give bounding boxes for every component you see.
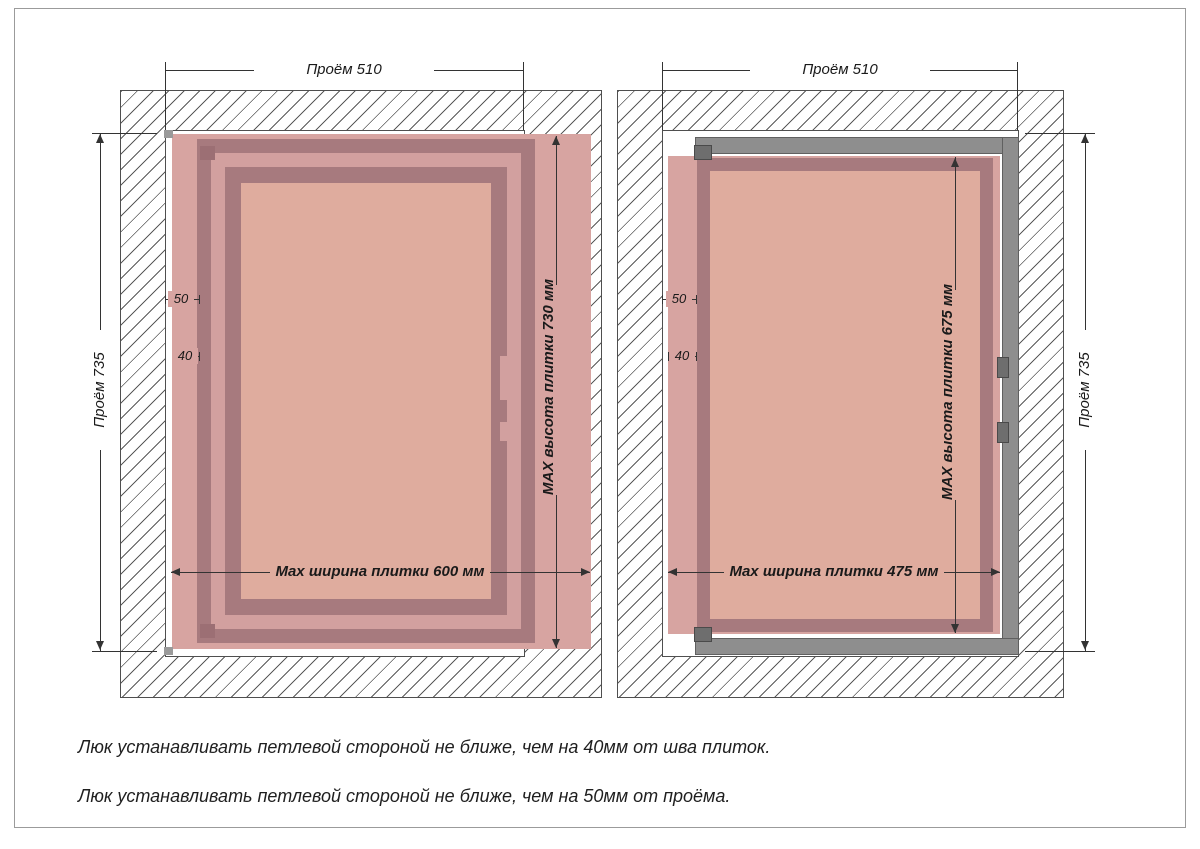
right-dim-40-label: 40 bbox=[669, 348, 695, 364]
left-door-panel bbox=[241, 183, 491, 599]
right-dim-50-tick-right bbox=[696, 295, 697, 304]
right-dim-50-label: 50 bbox=[666, 291, 692, 307]
left-dim-50-tick-left bbox=[165, 295, 166, 304]
left-hinge-top bbox=[200, 146, 215, 160]
right-dim-tile-height-arrow-down bbox=[951, 624, 959, 633]
left-dim-40-label: 40 bbox=[172, 348, 198, 364]
note-hinge-offset-seam: Люк устанавливать петлевой стороной не б… bbox=[78, 737, 770, 758]
right-dim-tile-height-arrow-up bbox=[951, 158, 959, 167]
left-ext-line-opening-right bbox=[523, 62, 524, 130]
right-metal-frame-bottom bbox=[695, 638, 1019, 655]
note-hinge-offset-opening: Люк устанавливать петлевой стороной не б… bbox=[78, 786, 730, 807]
left-dim-50-label: 50 bbox=[168, 291, 194, 307]
right-hinge-top bbox=[694, 145, 712, 160]
right-metal-frame-top bbox=[695, 137, 1019, 154]
right-dim-opening-height-arrow-down bbox=[1081, 641, 1089, 650]
left-ext-line-opening-bottom bbox=[92, 651, 157, 652]
left-frame-corner-top bbox=[164, 130, 173, 138]
right-dim-tile-width-label: Max ширина плитки 475 мм bbox=[724, 563, 944, 581]
left-dim-opening-height-label: Проём 735 bbox=[91, 330, 109, 450]
left-dim-50-tick-right bbox=[199, 295, 200, 304]
right-dim-40-tick-right bbox=[696, 352, 697, 361]
right-dim-50-tick-left bbox=[662, 295, 663, 304]
right-dim-tile-width-arrow-left bbox=[668, 568, 677, 576]
left-dim-opening-width-label: Проём 510 bbox=[254, 61, 434, 79]
right-dim-tile-height-label: MAX высота плитки 675 мм bbox=[939, 290, 957, 500]
right-dim-opening-width-label: Проём 510 bbox=[750, 61, 930, 79]
left-dim-tile-width-label: Max ширина плитки 600 мм bbox=[270, 563, 490, 581]
right-dim-opening-height-label: Проём 735 bbox=[1076, 330, 1094, 450]
drawing-canvas: Проём 510 Проём 735 MAX высота плитки 73… bbox=[0, 0, 1200, 849]
left-dim-tile-width-arrow-right bbox=[581, 568, 590, 576]
right-dim-tile-width-arrow-right bbox=[991, 568, 1000, 576]
left-dim-tile-height-label: MAX высота плитки 730 мм bbox=[540, 285, 558, 495]
left-ext-line-opening-left bbox=[165, 62, 166, 130]
right-dim-opening-height-arrow-up bbox=[1081, 134, 1089, 143]
left-dim-opening-height-arrow-up bbox=[96, 134, 104, 143]
right-metal-frame-right bbox=[1002, 137, 1019, 655]
right-hinge-bottom bbox=[694, 627, 712, 642]
right-latch-lower bbox=[997, 422, 1009, 443]
right-latch-upper bbox=[997, 357, 1009, 378]
left-dim-tile-height-arrow-up bbox=[552, 136, 560, 145]
left-frame-corner-bottom bbox=[164, 647, 173, 655]
left-hinge-bottom bbox=[200, 624, 215, 638]
left-dim-tile-width-arrow-left bbox=[171, 568, 180, 576]
left-latch-lower bbox=[500, 422, 511, 441]
right-ext-line-opening-bottom bbox=[1025, 651, 1095, 652]
left-dim-40-tick-right bbox=[199, 352, 200, 361]
left-latch-upper bbox=[500, 356, 511, 400]
left-dim-opening-height-arrow-down bbox=[96, 641, 104, 650]
left-dim-tile-height-arrow-down bbox=[552, 639, 560, 648]
right-ext-line-opening-left bbox=[662, 62, 663, 130]
right-ext-line-opening-right bbox=[1017, 62, 1018, 130]
